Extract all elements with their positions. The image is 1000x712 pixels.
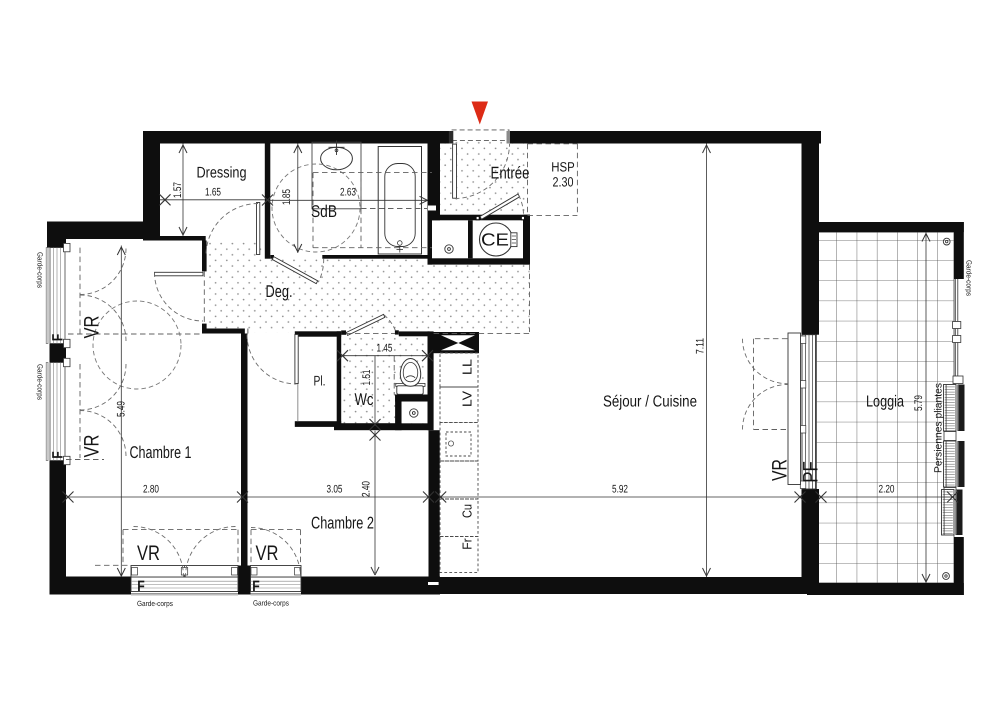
svg-text:5.79: 5.79 [913, 395, 925, 411]
svg-text:2.30: 2.30 [553, 175, 574, 190]
svg-text:2.40: 2.40 [361, 481, 373, 497]
svg-text:7.11: 7.11 [695, 338, 707, 354]
svg-text:Loggia: Loggia [866, 394, 904, 411]
svg-text:VR: VR [769, 459, 792, 481]
svg-text:F: F [50, 451, 67, 459]
svg-text:SdB: SdB [311, 202, 337, 221]
svg-text:PF: PF [800, 461, 823, 483]
svg-text:LV: LV [460, 391, 475, 407]
svg-text:Cu: Cu [460, 504, 475, 518]
svg-text:1.57: 1.57 [172, 182, 184, 198]
svg-text:Garde-corps: Garde-corps [36, 364, 45, 400]
svg-text:VR: VR [137, 542, 160, 565]
svg-text:F: F [252, 578, 260, 595]
svg-text:LL: LL [460, 359, 475, 375]
svg-text:CE: CE [481, 230, 509, 250]
svg-text:Persiennes pliantes: Persiennes pliantes [933, 383, 945, 473]
svg-text:2.63: 2.63 [340, 187, 356, 199]
svg-text:Pl.: Pl. [314, 373, 326, 389]
svg-text:3.05: 3.05 [327, 484, 343, 496]
svg-text:5.49: 5.49 [116, 401, 128, 417]
svg-text:1.85: 1.85 [281, 189, 293, 205]
svg-text:VR: VR [81, 316, 104, 339]
svg-text:VR: VR [81, 435, 104, 458]
svg-text:HSP: HSP [551, 160, 575, 175]
svg-text:1.45: 1.45 [377, 343, 393, 355]
svg-text:Fr: Fr [460, 538, 475, 550]
svg-text:5.92: 5.92 [612, 484, 628, 496]
svg-text:Garde-corps: Garde-corps [965, 260, 974, 296]
svg-text:F: F [50, 334, 67, 342]
svg-text:Dressing: Dressing [197, 165, 247, 182]
svg-text:Chambre 1: Chambre 1 [130, 443, 192, 462]
svg-text:Garde-corps: Garde-corps [253, 599, 289, 608]
svg-text:Séjour / Cuisine: Séjour / Cuisine [603, 394, 697, 411]
svg-text:Garde-corps: Garde-corps [36, 252, 45, 288]
svg-text:2.80: 2.80 [143, 484, 159, 496]
svg-text:Wc: Wc [355, 390, 374, 409]
svg-text:Deg.: Deg. [266, 282, 293, 301]
svg-text:1.65: 1.65 [205, 187, 221, 199]
svg-text:2.20: 2.20 [879, 484, 895, 496]
svg-text:F: F [137, 578, 145, 595]
svg-text:VR: VR [256, 542, 279, 565]
svg-text:Chambre 2: Chambre 2 [311, 514, 374, 533]
svg-text:Entrée: Entrée [491, 164, 530, 183]
svg-text:Garde-corps: Garde-corps [137, 599, 173, 608]
svg-text:1.51: 1.51 [361, 370, 373, 386]
